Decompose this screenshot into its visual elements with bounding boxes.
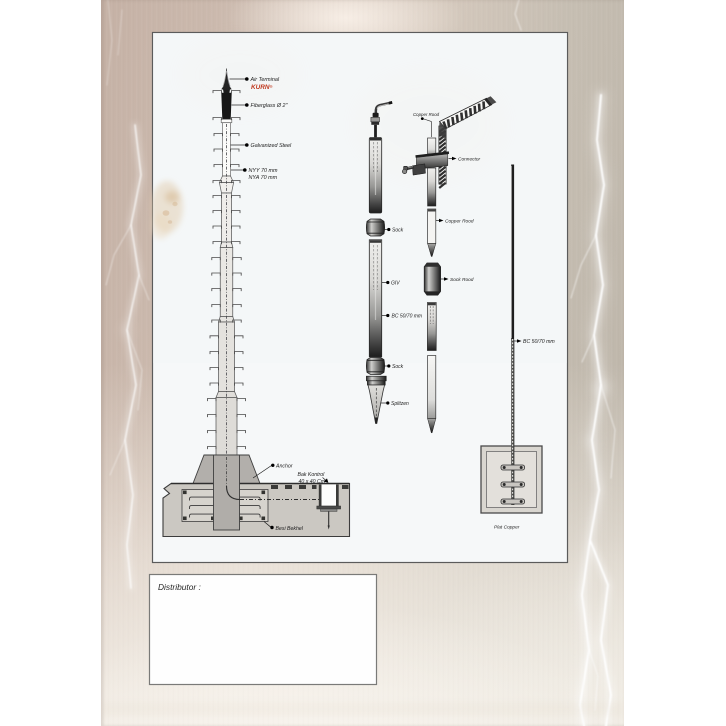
svg-text:Sock Rood: Sock Rood — [450, 277, 474, 283]
svg-text:Distributor :: Distributor : — [158, 582, 201, 592]
svg-text:Bak Kontrol: Bak Kontrol — [298, 472, 326, 478]
svg-text:Anchor: Anchor — [275, 463, 293, 469]
svg-text:Air Terminal: Air Terminal — [250, 77, 280, 83]
svg-text:Fiberglass Ø 2": Fiberglass Ø 2" — [251, 103, 289, 109]
svg-text:Plat Copper: Plat Copper — [494, 525, 520, 531]
svg-text:Sock: Sock — [392, 364, 404, 370]
svg-text:40 x 40 Cm: 40 x 40 Cm — [299, 479, 326, 485]
svg-text:Besi Bekhel: Besi Bekhel — [276, 526, 304, 532]
svg-text:BC 50/70 mm: BC 50/70 mm — [523, 339, 555, 345]
svg-text:Copper Rood: Copper Rood — [445, 219, 474, 225]
svg-text:Sock: Sock — [392, 228, 404, 234]
svg-text:Connector: Connector — [458, 157, 481, 163]
svg-text:Galvanized Steel: Galvanized Steel — [251, 143, 293, 149]
svg-text:KURN®: KURN® — [251, 84, 272, 91]
svg-text:NYA 70 mm: NYA 70 mm — [249, 175, 278, 181]
svg-text:BC 50/70 mm: BC 50/70 mm — [392, 314, 423, 320]
svg-text:GIV: GIV — [391, 281, 400, 287]
svg-text:Splitzen: Splitzen — [391, 401, 409, 407]
svg-text:NYY 70 mm: NYY 70 mm — [249, 168, 278, 174]
svg-text:Copper Rood: Copper Rood — [413, 112, 440, 117]
